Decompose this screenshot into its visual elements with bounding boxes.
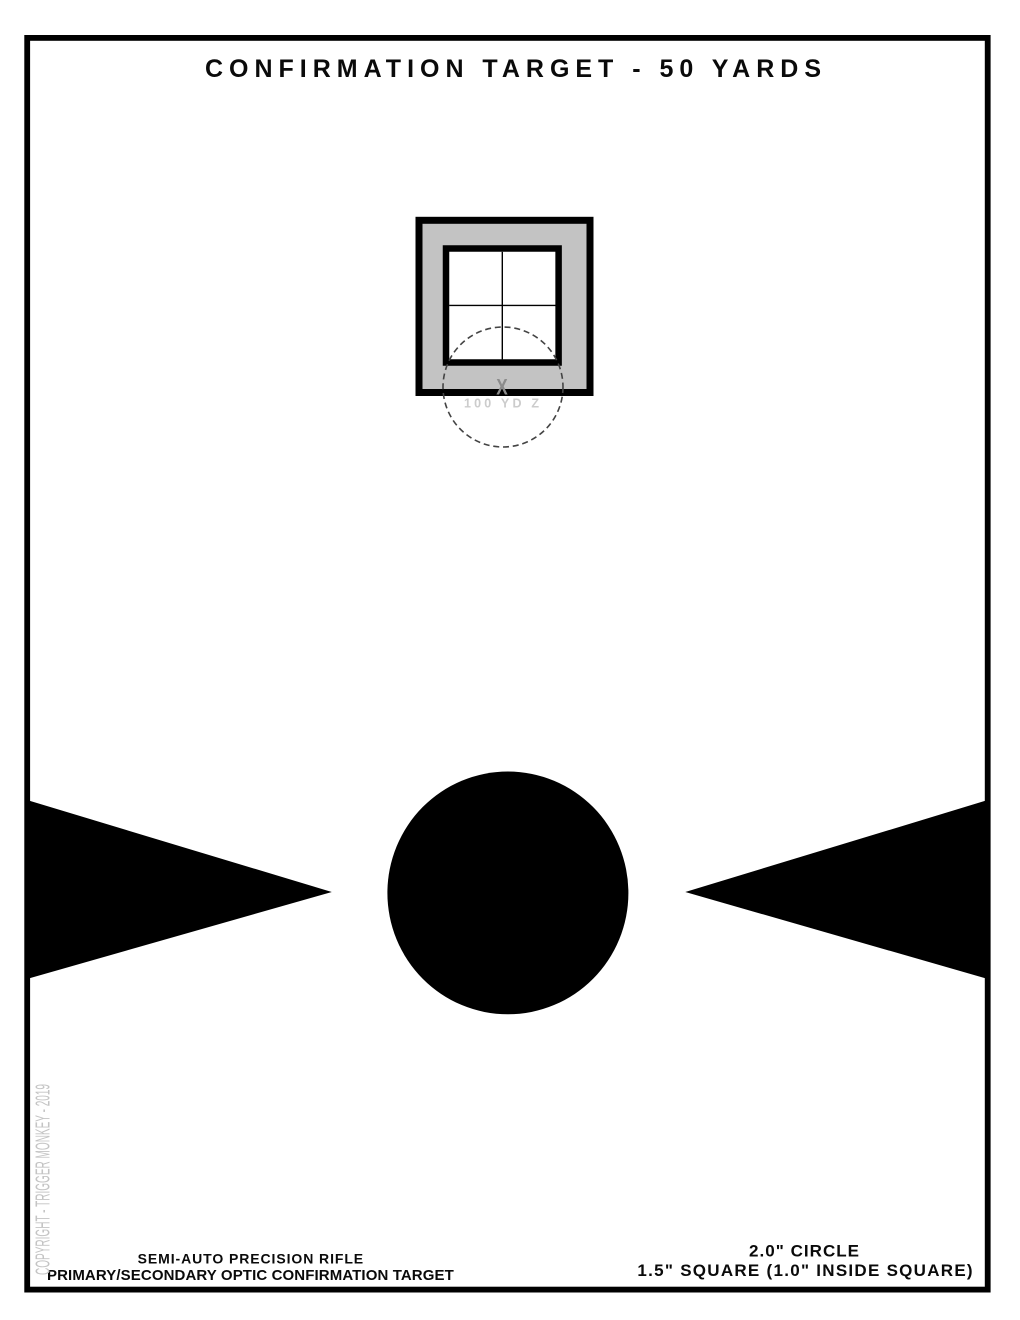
svg-text:100 YD Z: 100 YD Z <box>464 397 539 411</box>
svg-text:PRIMARY/SECONDARY OPTIC CONFIR: PRIMARY/SECONDARY OPTIC CONFIRMATION TAR… <box>47 1267 454 1284</box>
svg-text:1.5" SQUARE (1.0" INSIDE SQUAR: 1.5" SQUARE (1.0" INSIDE SQUARE) <box>637 1261 972 1280</box>
svg-text:SEMI-AUTO PRECISION RIFLE: SEMI-AUTO PRECISION RIFLE <box>138 1251 364 1267</box>
svg-text:COPYRIGHT - TRIGGER MONKEY - 2: COPYRIGHT - TRIGGER MONKEY - 2019 <box>33 1084 55 1275</box>
svg-text:2.0" CIRCLE: 2.0" CIRCLE <box>749 1242 859 1261</box>
